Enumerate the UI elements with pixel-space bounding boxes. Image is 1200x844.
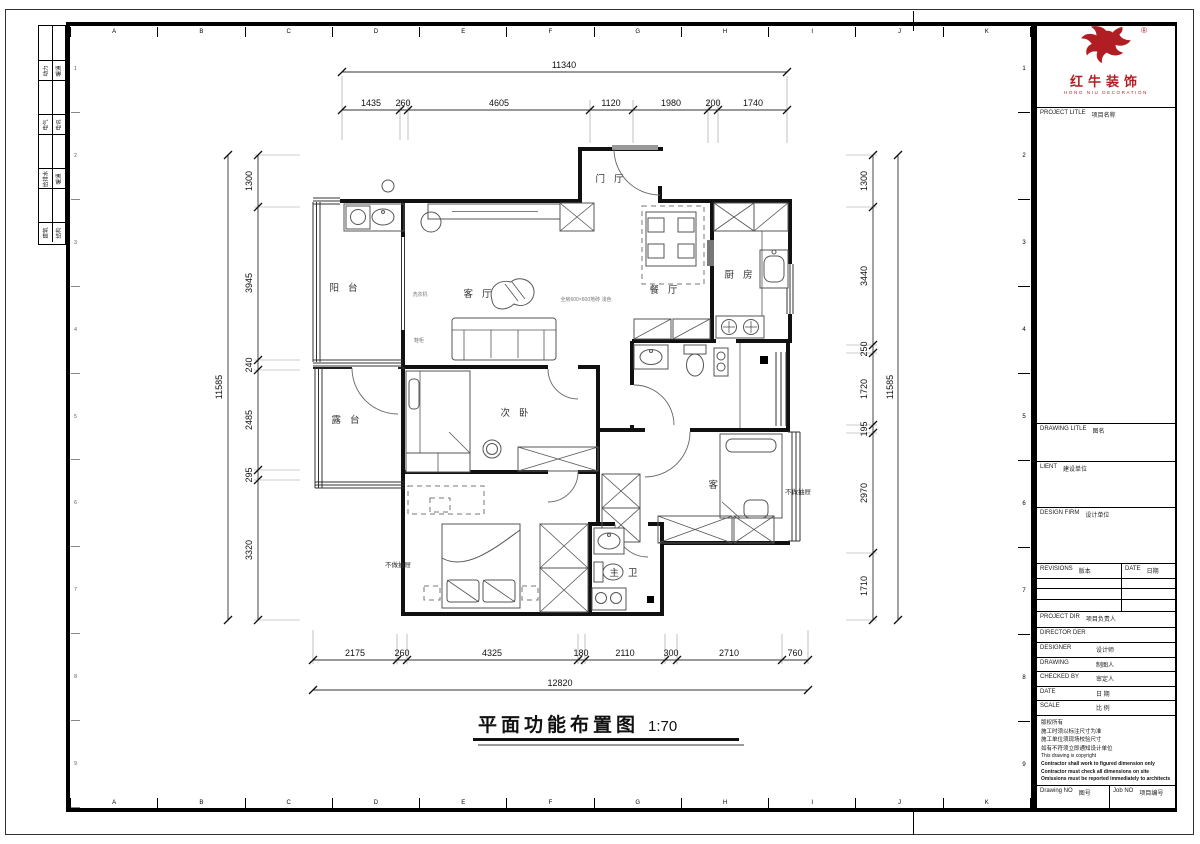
room-label-dining: 餐厅 xyxy=(649,284,686,296)
dim-top-overall: 11340 xyxy=(552,60,576,70)
dim-label: 2175 xyxy=(345,648,365,658)
guest-bedroom-furniture xyxy=(658,434,782,543)
chair xyxy=(744,500,768,518)
annotation-washer: 洗衣机 xyxy=(412,291,427,298)
floor-drain-icon xyxy=(647,596,654,603)
dim-label: 1980 xyxy=(661,98,681,108)
toilet-tank xyxy=(684,345,706,354)
entry-door-swing xyxy=(614,149,660,195)
kitchen-sliding-door xyxy=(707,240,714,266)
floor-drain-icon xyxy=(760,356,768,364)
guest-bedroom-door-swing xyxy=(645,432,690,477)
master-bedroom-door-swing xyxy=(548,472,578,502)
dim-label: 300 xyxy=(663,648,678,658)
master-bedroom-furniture xyxy=(408,486,588,612)
title-underline-shadow xyxy=(478,744,744,746)
room-label-terrace: 露台 xyxy=(331,414,368,426)
dim-label: 1120 xyxy=(601,98,620,108)
terrace-door-swing xyxy=(352,368,398,414)
second-bedroom-door-swing xyxy=(548,369,578,399)
balcony-fixtures xyxy=(344,180,404,231)
dim-label: 1720 xyxy=(859,379,869,399)
dim-left-overall: 11585 xyxy=(214,375,224,399)
dim-label: 1435 xyxy=(361,98,381,108)
bath-vanity xyxy=(634,345,668,369)
annotation-shoe-cabinet: 鞋柜 xyxy=(414,337,424,344)
dim-label: 250 xyxy=(859,341,869,356)
dim-label: 1710 xyxy=(859,576,869,596)
sofa xyxy=(452,318,556,360)
dining-chair xyxy=(678,244,694,258)
title-underline xyxy=(473,738,739,741)
dim-label: 2710 xyxy=(719,648,739,658)
furniture-layer xyxy=(344,180,788,612)
dim-label: 1300 xyxy=(244,171,254,191)
dining-furniture xyxy=(642,206,704,284)
second-bedroom-furniture xyxy=(406,371,598,472)
dim-right-overall: 11585 xyxy=(885,375,895,399)
dining-chair xyxy=(648,218,664,232)
dim-label: 2110 xyxy=(615,648,634,658)
nightstand xyxy=(424,586,440,600)
dim-label: 260 xyxy=(394,648,409,658)
dining-chair xyxy=(648,244,664,258)
dim-bottom-overall: 12820 xyxy=(547,678,572,688)
annotation-no-drawer: 不做抽屉 xyxy=(785,487,812,496)
room-label-second-bedroom: 次卧 xyxy=(500,407,537,419)
floor-plan-svg: 门厅 阳台 客厅 餐厅 厨房 露台 次卧 客卧 主卧 主卫 xyxy=(0,0,1200,844)
stool xyxy=(483,440,501,458)
plan-title-text: 平面功能布置图 xyxy=(478,713,639,736)
dimension-layer: 11340 1435 260 4605 1120 1980 200 1740 xyxy=(214,60,902,694)
bed xyxy=(406,371,470,453)
dim-label: 1300 xyxy=(859,171,869,191)
dim-label: 240 xyxy=(244,357,254,372)
dim-label: 1740 xyxy=(743,98,763,108)
plan-title: 平面功能布置图 1:70 xyxy=(473,713,744,746)
bathroom-fixtures xyxy=(634,343,768,428)
toilet-icon xyxy=(687,354,704,376)
hall-cabinets xyxy=(634,319,710,339)
dim-label: 295 xyxy=(244,467,254,482)
dim-label: 3320 xyxy=(244,540,254,560)
dim-label: 4325 xyxy=(482,648,502,658)
dining-chair xyxy=(678,218,694,232)
nightstand xyxy=(522,586,538,600)
toilet-tank xyxy=(594,562,603,582)
dim-label: 760 xyxy=(787,648,802,658)
dim-label: 3945 xyxy=(244,273,254,293)
annotation-no-drawer: 不做抽屉 xyxy=(385,560,412,569)
double-bed xyxy=(442,524,520,608)
living-room-furniture xyxy=(421,204,560,360)
room-label-balcony: 阳台 xyxy=(329,282,366,294)
dim-label: 200 xyxy=(705,98,720,108)
balcony-basin-icon xyxy=(372,209,394,225)
entry-door-leaf xyxy=(612,145,658,150)
dim-label: 180 xyxy=(573,648,588,658)
dim-label: 2970 xyxy=(859,483,869,503)
dim-label: 3440 xyxy=(859,266,869,286)
room-label-entry: 门厅 xyxy=(595,173,632,185)
room-label-master-bath: 主卫 xyxy=(609,567,646,579)
dim-label: 2485 xyxy=(244,410,254,430)
dim-label: 260 xyxy=(395,98,410,108)
dim-label: 195 xyxy=(859,421,869,436)
doorbell-icon xyxy=(382,180,394,192)
dim-label: 4605 xyxy=(489,98,509,108)
room-label-kitchen: 厨房 xyxy=(724,269,761,281)
shoe-cabinet xyxy=(560,203,594,231)
annotation-floor-note: 全房600×600地砖 浅色 xyxy=(561,296,612,303)
plan-scale-text: 1:70 xyxy=(648,718,677,735)
bath-door-swing xyxy=(634,385,674,425)
